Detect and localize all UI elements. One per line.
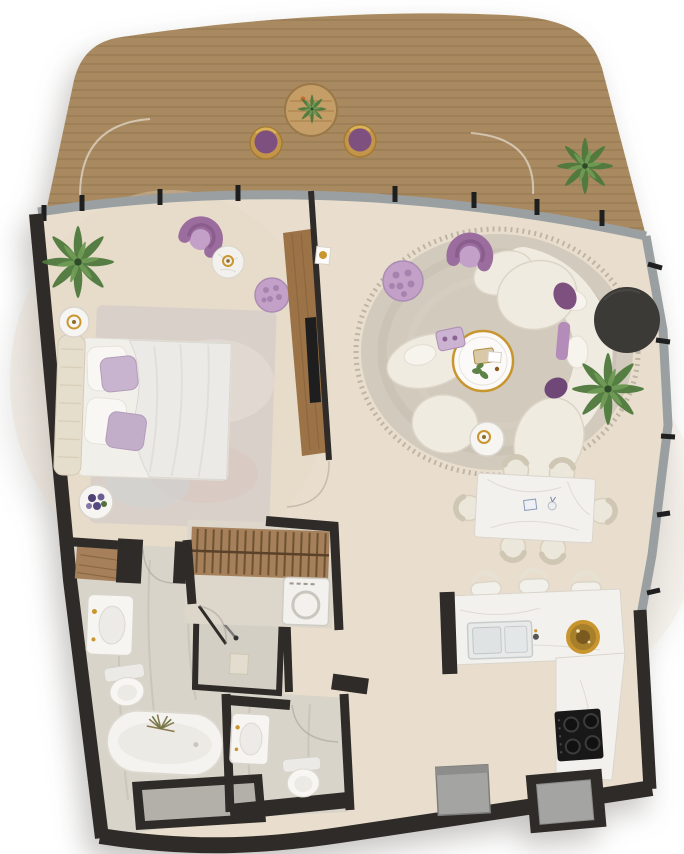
bedroom-plant [42,226,114,298]
bed-duvet [125,340,232,479]
floor-plan-image [0,0,684,854]
terrace-chair-right [344,125,376,157]
terrace-plant [557,138,613,194]
table-vase [548,502,556,510]
cooktop [554,708,603,761]
kitchen-appliance [436,765,490,816]
bed-pillow-purple [99,355,138,393]
entry-recess [526,769,607,833]
living-plant [572,353,644,425]
bed [54,335,233,481]
living-side-table [470,422,504,456]
wall-stub [116,538,143,583]
table-ornament [524,499,537,510]
terrace-chair-left [250,127,282,159]
book [488,351,502,362]
wall-art [315,246,331,264]
closet-wall-left [187,540,192,604]
floor-plan [10,13,684,848]
bathtub [105,709,224,777]
kitchen-sink [467,621,539,659]
bed-headboard [54,335,86,476]
nightstand-top [59,307,89,337]
bedroom-pouf [255,278,289,312]
closet-wall-right [334,524,339,630]
wall-bedroom-bath-left [60,541,118,545]
living-pouf [383,261,423,301]
wc-vanity [230,713,271,765]
wc-wall-top [228,700,290,705]
floor-plan-svg [0,0,684,854]
door-handle [234,636,239,641]
closet-wall-top [266,521,338,527]
gold-bowl [568,622,598,652]
window-ledge [132,774,266,830]
dark-round-table [594,287,660,353]
bed-pillow-purple [105,411,148,452]
sofa-cushion [566,336,588,368]
shower-bench [229,654,248,675]
table-plant [298,95,327,124]
bathroom-vanity [86,594,134,656]
cup [495,367,499,371]
nightstand-bottom [79,485,113,519]
washing-machine [282,577,330,626]
terrace-table [285,84,337,136]
bedroom-side-table [212,246,244,278]
kitchen-wall-stub [440,592,458,674]
wc-wall-divider [226,694,230,812]
